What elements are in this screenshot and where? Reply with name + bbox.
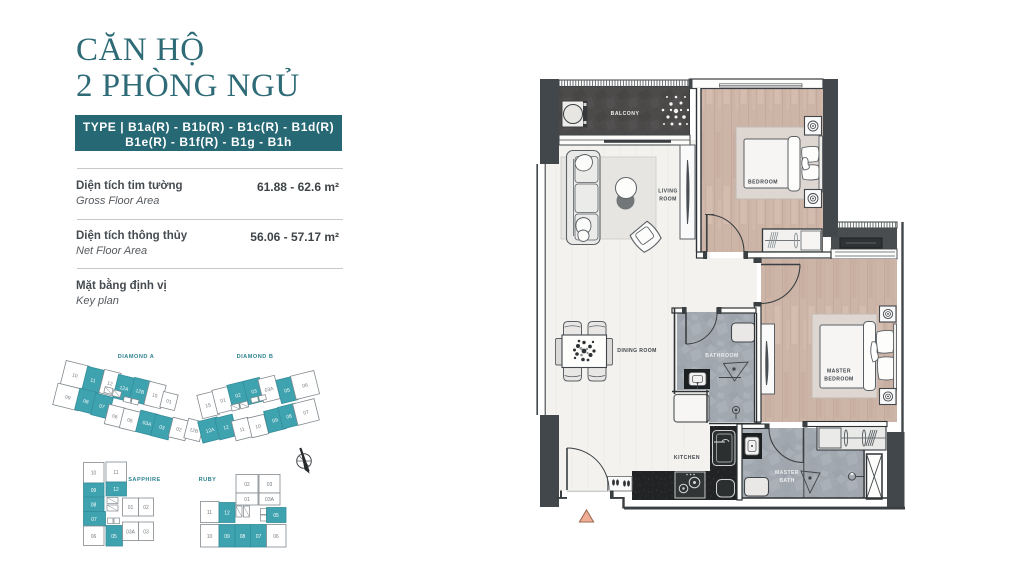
svg-text:LIVING: LIVING bbox=[658, 189, 677, 195]
svg-text:03A: 03A bbox=[126, 530, 136, 536]
svg-text:09: 09 bbox=[224, 534, 230, 540]
svg-text:10: 10 bbox=[207, 534, 213, 540]
svg-text:BATHROOM: BATHROOM bbox=[705, 353, 739, 359]
svg-text:05: 05 bbox=[273, 513, 279, 519]
svg-text:DIAMOND A: DIAMOND A bbox=[118, 354, 155, 360]
svg-text:01: 01 bbox=[128, 505, 134, 511]
svg-text:MASTER: MASTER bbox=[775, 470, 799, 476]
svg-text:MASTER: MASTER bbox=[827, 369, 851, 375]
svg-text:07: 07 bbox=[256, 534, 262, 540]
svg-text:BEDROOM: BEDROOM bbox=[748, 180, 778, 186]
svg-text:BALCONY: BALCONY bbox=[611, 111, 640, 117]
svg-text:07: 07 bbox=[91, 517, 97, 523]
svg-text:DIAMOND B: DIAMOND B bbox=[237, 354, 274, 360]
svg-text:02: 02 bbox=[244, 482, 250, 488]
svg-text:05: 05 bbox=[111, 534, 117, 540]
svg-text:12: 12 bbox=[224, 511, 230, 517]
svg-text:06: 06 bbox=[91, 534, 97, 540]
svg-text:12: 12 bbox=[113, 487, 119, 493]
svg-text:06: 06 bbox=[273, 534, 279, 540]
svg-text:03: 03 bbox=[143, 530, 149, 536]
svg-text:11: 11 bbox=[207, 510, 212, 516]
svg-text:KITCHEN: KITCHEN bbox=[674, 455, 700, 461]
svg-text:03A: 03A bbox=[265, 497, 275, 503]
svg-text:DINING ROOM: DINING ROOM bbox=[617, 348, 657, 354]
svg-text:ROOM: ROOM bbox=[659, 197, 676, 203]
svg-text:BEDROOM: BEDROOM bbox=[824, 377, 853, 383]
svg-text:10: 10 bbox=[91, 471, 97, 477]
svg-text:RUBY: RUBY bbox=[199, 477, 217, 483]
svg-text:BATH: BATH bbox=[779, 478, 794, 484]
svg-text:09: 09 bbox=[91, 488, 97, 494]
svg-text:01: 01 bbox=[244, 497, 250, 503]
svg-text:08: 08 bbox=[240, 534, 246, 540]
svg-text:03: 03 bbox=[267, 482, 273, 488]
svg-text:02: 02 bbox=[143, 505, 149, 511]
svg-text:SAPPHIRE: SAPPHIRE bbox=[128, 477, 161, 483]
svg-text:08: 08 bbox=[91, 503, 97, 509]
svg-text:11: 11 bbox=[113, 470, 118, 476]
